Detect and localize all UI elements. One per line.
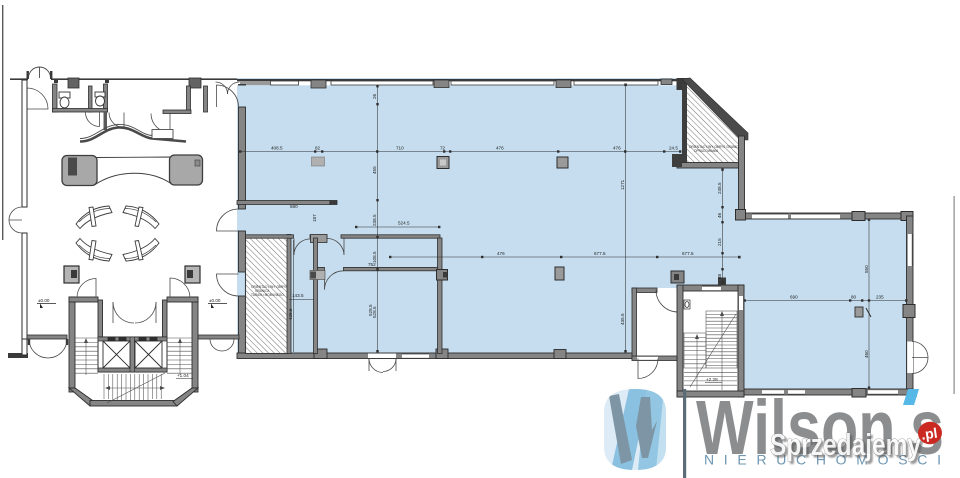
svg-text:680: 680 xyxy=(290,204,298,209)
svg-text:±0.00: ±0.00 xyxy=(209,298,221,303)
svg-text:72: 72 xyxy=(440,146,446,151)
svg-text:+1.04: +1.04 xyxy=(177,373,189,378)
svg-text:Sprzedajemy: Sprzedajemy xyxy=(770,427,922,462)
svg-text:24.5: 24.5 xyxy=(669,146,678,151)
svg-text:408.5: 408.5 xyxy=(271,146,283,151)
svg-text:215: 215 xyxy=(717,238,722,246)
svg-text:425.5: 425.5 xyxy=(288,308,293,320)
svg-text:524.5: 524.5 xyxy=(398,221,410,226)
svg-text:476: 476 xyxy=(496,146,504,151)
svg-text:187: 187 xyxy=(312,214,317,222)
svg-text:752: 752 xyxy=(368,262,376,267)
svg-text:82: 82 xyxy=(315,146,321,151)
svg-text:.pl: .pl xyxy=(920,425,938,443)
svg-text:435.5: 435.5 xyxy=(620,313,625,325)
svg-text:OPRACOWANIA: OPRACOWANIA xyxy=(694,149,719,153)
svg-text:46: 46 xyxy=(717,212,722,218)
svg-text:528.5: 528.5 xyxy=(368,304,373,316)
svg-text:+2.28: +2.28 xyxy=(706,377,718,382)
svg-text:476: 476 xyxy=(613,146,621,151)
svg-text:235: 235 xyxy=(876,295,884,300)
svg-text:26: 26 xyxy=(372,93,377,99)
svg-text:460: 460 xyxy=(864,350,869,358)
svg-text:88: 88 xyxy=(717,273,722,279)
svg-text:550: 550 xyxy=(864,265,869,273)
svg-text:±0.00: ±0.00 xyxy=(38,298,50,303)
svg-text:476: 476 xyxy=(497,251,505,256)
svg-text:TARASU MOBILNEGO: TARASU MOBILNEGO xyxy=(251,293,284,297)
svg-text:710: 710 xyxy=(396,146,404,151)
svg-text:238.5: 238.5 xyxy=(372,214,377,226)
svg-text:80: 80 xyxy=(851,295,857,300)
svg-text:455: 455 xyxy=(372,166,377,174)
svg-text:143.5: 143.5 xyxy=(292,293,304,298)
svg-text:248.5: 248.5 xyxy=(717,182,722,194)
svg-text:677.5: 677.5 xyxy=(682,251,694,256)
svg-text:690: 690 xyxy=(790,295,798,300)
svg-text:1271: 1271 xyxy=(620,179,625,190)
svg-text:677.5: 677.5 xyxy=(594,251,606,256)
